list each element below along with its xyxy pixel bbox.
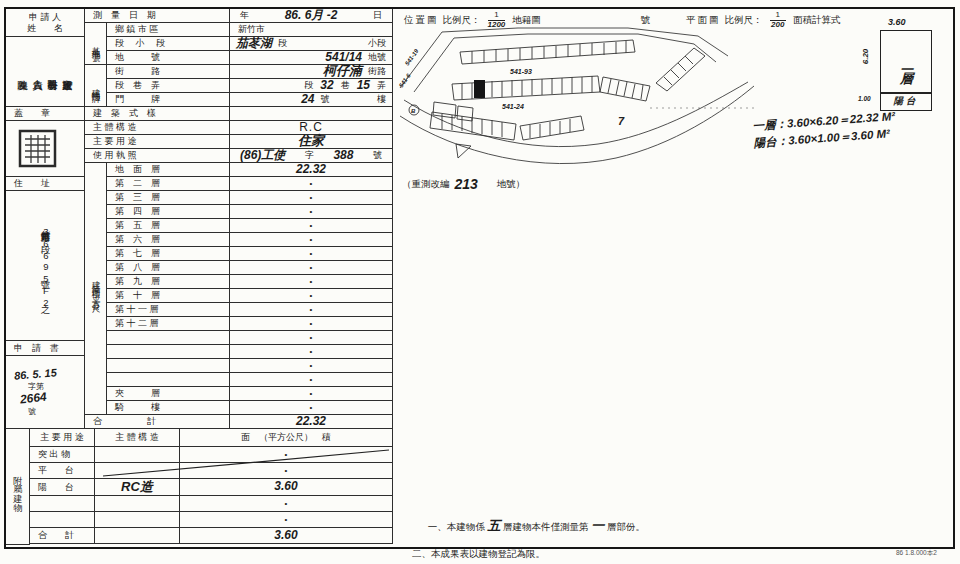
- attached-row-structure: [95, 463, 180, 479]
- floor-row-label: 第 十 二 層: [107, 317, 230, 331]
- scale-denominator-handwritten: 200: [771, 21, 784, 30]
- use-license-label: 使 用 執 照: [85, 149, 230, 163]
- map-lot-label: 541-24: [502, 103, 524, 110]
- attached-row-use: [30, 496, 95, 512]
- floor-row-label: [107, 359, 230, 373]
- section-name-handwritten: 茄苳湖: [236, 37, 272, 51]
- floor-row-label: 第 八 層: [107, 261, 230, 275]
- attached-row-use: 突 出 物: [30, 447, 95, 463]
- application-number-handwritten: 2664: [19, 391, 47, 408]
- floor-row-value: •: [230, 331, 393, 345]
- license-zi: 字: [305, 150, 314, 160]
- cadastral-map: 541-93 541-24 541-19 541-6 7 B: [398, 26, 758, 181]
- floor-row-value: •: [230, 261, 393, 275]
- floor-row-label: 第 六 層: [107, 233, 230, 247]
- floor-row-label: 第 三 層: [107, 191, 230, 205]
- door-number-label: 門 牌: [107, 93, 230, 107]
- main-use-label: 主 要 用 途: [85, 135, 230, 149]
- floor-row-label: 地 面 層: [107, 163, 230, 177]
- floor-row-label: 第 五 層: [107, 219, 230, 233]
- subject-building-mark: [474, 80, 485, 98]
- floor-row-value: •: [230, 359, 393, 373]
- alley-number-handwritten: 15: [357, 79, 370, 93]
- application-date-handwritten: 86. 5. 15: [14, 366, 58, 382]
- attached-row-use: 平 台: [30, 463, 95, 479]
- scale-label: 比例尺：: [443, 14, 481, 27]
- attached-row-area: •: [180, 463, 393, 479]
- applicant-name-label: 申 請 人 姓 名: [6, 9, 85, 37]
- floor-row-label: [107, 373, 230, 387]
- building-style-label: 建 築 式 樣: [85, 107, 230, 121]
- door-plate-section-label: 建物門牌: [85, 65, 107, 107]
- note-text: 層部份。: [604, 521, 645, 532]
- floor-plan-title: 平面圖: [686, 14, 721, 27]
- use-license-value: (86)工使 字 388 號: [230, 149, 393, 163]
- license-prefix-handwritten: (86)工使: [240, 149, 285, 163]
- attached-area-header: 面 （平方公尺） 積: [180, 429, 393, 447]
- subsection-unit: 小段: [368, 38, 386, 48]
- stamp-cell: [6, 121, 85, 177]
- floor-row-label: 第 七 層: [107, 247, 230, 261]
- floor-row-label: 夾 層: [107, 387, 230, 401]
- site-lot-section-label: 基地地號: [85, 23, 107, 65]
- section-label: 段 小 段: [107, 37, 230, 51]
- attached-total-area: 3.60: [180, 528, 393, 544]
- year-unit: 年: [240, 10, 249, 20]
- note-measured-floor-handwritten: 一: [591, 518, 604, 533]
- map-circle-label: B: [411, 108, 416, 114]
- attached-row-area: •: [180, 512, 393, 528]
- attached-total-use: 合 計: [30, 528, 95, 544]
- floor-row-value: •: [230, 205, 393, 219]
- floor-row-value: 22.32: [230, 163, 393, 177]
- attached-use-header: 主 要 用 途: [30, 429, 95, 447]
- floor-unit: 樓: [377, 94, 386, 104]
- building-area-column-label: 建築面積（平方公尺）: [85, 163, 107, 415]
- lane-number-handwritten: 32: [320, 79, 333, 93]
- street-value: 柯仔湳 街路: [230, 65, 393, 79]
- segment-unit: 段: [304, 80, 313, 90]
- survey-date-handwritten: 86. 6月 -2: [285, 9, 338, 23]
- floor-row-value: •: [230, 219, 393, 233]
- note-1: 一、本建物係 五 層建物本件僅測量第 一 層部份。: [412, 505, 819, 547]
- main-use-value: 住家: [230, 135, 393, 149]
- floor-row-value: •: [230, 303, 393, 317]
- area-calc-label: 面積計算式: [793, 14, 841, 27]
- lot-unit: 地號: [368, 52, 386, 62]
- application-doc-cell: 86. 5. 15 字第 2664 號: [6, 356, 85, 429]
- door-number-handwritten: 24: [301, 93, 314, 107]
- door-number-value: 24 號 樓: [230, 93, 393, 107]
- plan-balcony-dimension: 1.00: [858, 95, 871, 102]
- resurvey-suffix: 地號）: [497, 178, 526, 191]
- hao-suffix: 號: [641, 14, 651, 27]
- floor-row-label: 第 十 一 層: [107, 303, 230, 317]
- floor-row-value: •: [230, 373, 393, 387]
- street-label: 街 路: [107, 65, 230, 79]
- floor-row-label: [107, 331, 230, 345]
- note-2: 二、本成果表以建物登記為限。: [412, 547, 819, 561]
- plan-room-box: 一層: [880, 30, 932, 94]
- floor-row-label: 第 二 層: [107, 177, 230, 191]
- floor-total-label: 合 計: [85, 415, 230, 429]
- lane-alley-value: 段 32 巷 15 弄: [230, 79, 393, 93]
- note-3: 三、本建物平面圖及建物面積係依使用執照 (86)工使 388 號設計圖或竣工平面…: [412, 560, 819, 564]
- survey-date-label: 測 量 日 期: [85, 9, 230, 23]
- attached-row-area: •: [180, 447, 393, 463]
- floor-row-value: •: [230, 177, 393, 191]
- plan-balcony-label: 陽台: [894, 95, 919, 108]
- scale-fraction: 1 200: [770, 11, 786, 30]
- floor-row-label: 騎 樓: [107, 401, 230, 415]
- plan-height-dimension: 6.20: [861, 49, 870, 65]
- lane-alley-label: 段 巷 弄: [107, 79, 230, 93]
- location-map-title: 位置圖: [404, 14, 439, 27]
- note-floors-handwritten: 五: [487, 518, 500, 533]
- floor-row-value: •: [230, 317, 393, 331]
- section-unit: 段: [278, 38, 287, 48]
- floor-row-value: •: [230, 289, 393, 303]
- attached-row-area: 3.60: [180, 479, 393, 496]
- floor-row-label: 第 十 層: [107, 289, 230, 303]
- floor-row-value: •: [230, 233, 393, 247]
- floor-row-value: •: [230, 345, 393, 359]
- registry-stamp-icon: [18, 128, 58, 170]
- attached-building-section-label: 附屬建物: [6, 429, 30, 545]
- floor-row-label: 第 九 層: [107, 275, 230, 289]
- address-value: 新竹市延平路3段669號5F之2: [6, 191, 85, 341]
- building-style-value: [230, 107, 393, 121]
- application-hao-label: 號: [28, 407, 36, 416]
- section-value: 茄苳湖 段 小段: [230, 37, 393, 51]
- floor-row-value: •: [230, 191, 393, 205]
- resurvey-note: （重測改編 213 地號）: [402, 176, 525, 192]
- map-annotation: 7: [618, 115, 625, 127]
- license-hao: 號: [373, 150, 382, 160]
- floor-row-value: •: [230, 247, 393, 261]
- license-number-handwritten: 388: [333, 149, 353, 163]
- scale-label: 比例尺：: [725, 14, 763, 27]
- district-label: 鄉 鎮 市 區: [107, 23, 230, 37]
- resurvey-lot-handwritten: 213: [455, 176, 478, 192]
- attached-row-use: [30, 512, 95, 528]
- lane-unit: 巷: [341, 80, 350, 90]
- lot-number-label: 地 號: [107, 51, 230, 65]
- plan-width-dimension: 3.60: [888, 17, 906, 27]
- attached-structure-header: 主 體 構 造: [95, 429, 180, 447]
- floor-row-value: •: [230, 401, 393, 415]
- attached-row-structure: [95, 512, 180, 528]
- applicant-company-name: 宏家華建設 股份有限公司 負責人 陳義友: [6, 37, 85, 107]
- district-value: 新竹市: [230, 23, 393, 37]
- seal-label: 蓋 章: [6, 107, 85, 121]
- map-lot-label: 541-19: [404, 47, 420, 66]
- scanned-survey-form: 申 請 人 姓 名 測 量 日 期 年 86. 6月 -2 日 宏家華建設 股份…: [0, 0, 960, 564]
- map-type-label: 地籍圖: [512, 14, 541, 27]
- application-doc-label: 申 請 書: [6, 341, 85, 356]
- note-text: 層建物本件僅測量第: [500, 521, 591, 532]
- day-unit: 日: [373, 10, 382, 20]
- floor-total-value: 22.32: [230, 415, 393, 429]
- attached-row-area: •: [180, 496, 393, 512]
- alley-unit: 弄: [377, 80, 386, 90]
- attached-row-use: 陽 台: [30, 479, 95, 496]
- attached-row-structure: [95, 496, 180, 512]
- street-unit: 街路: [368, 66, 386, 76]
- floor-row-value: •: [230, 275, 393, 289]
- attached-total-structure: [95, 528, 180, 544]
- number-unit: 號: [321, 94, 330, 104]
- note-text: 一、本建物係: [428, 521, 488, 532]
- footer-notes: 一、本建物係 五 層建物本件僅測量第 一 層部份。 二、本成果表以建物登記為限。…: [412, 505, 819, 564]
- main-structure-label: 主 體 構 造: [85, 121, 230, 135]
- lot-number-value: 541/14 地號: [230, 51, 393, 65]
- map-lot-label: 541-93: [510, 68, 532, 75]
- floor-row-label: 第 四 層: [107, 205, 230, 219]
- address-label: 住 址: [6, 177, 85, 191]
- floor-row-label: [107, 345, 230, 359]
- print-code: 86 1.8.000本2: [896, 549, 937, 558]
- floor-row-value: •: [230, 387, 393, 401]
- attached-row-structure: RC造: [95, 479, 180, 496]
- resurvey-prefix: （重測改編: [402, 178, 450, 191]
- street-name-handwritten: 柯仔湳: [323, 64, 362, 79]
- attached-row-structure: [95, 447, 180, 463]
- survey-date-value: 年 86. 6月 -2 日: [230, 9, 393, 23]
